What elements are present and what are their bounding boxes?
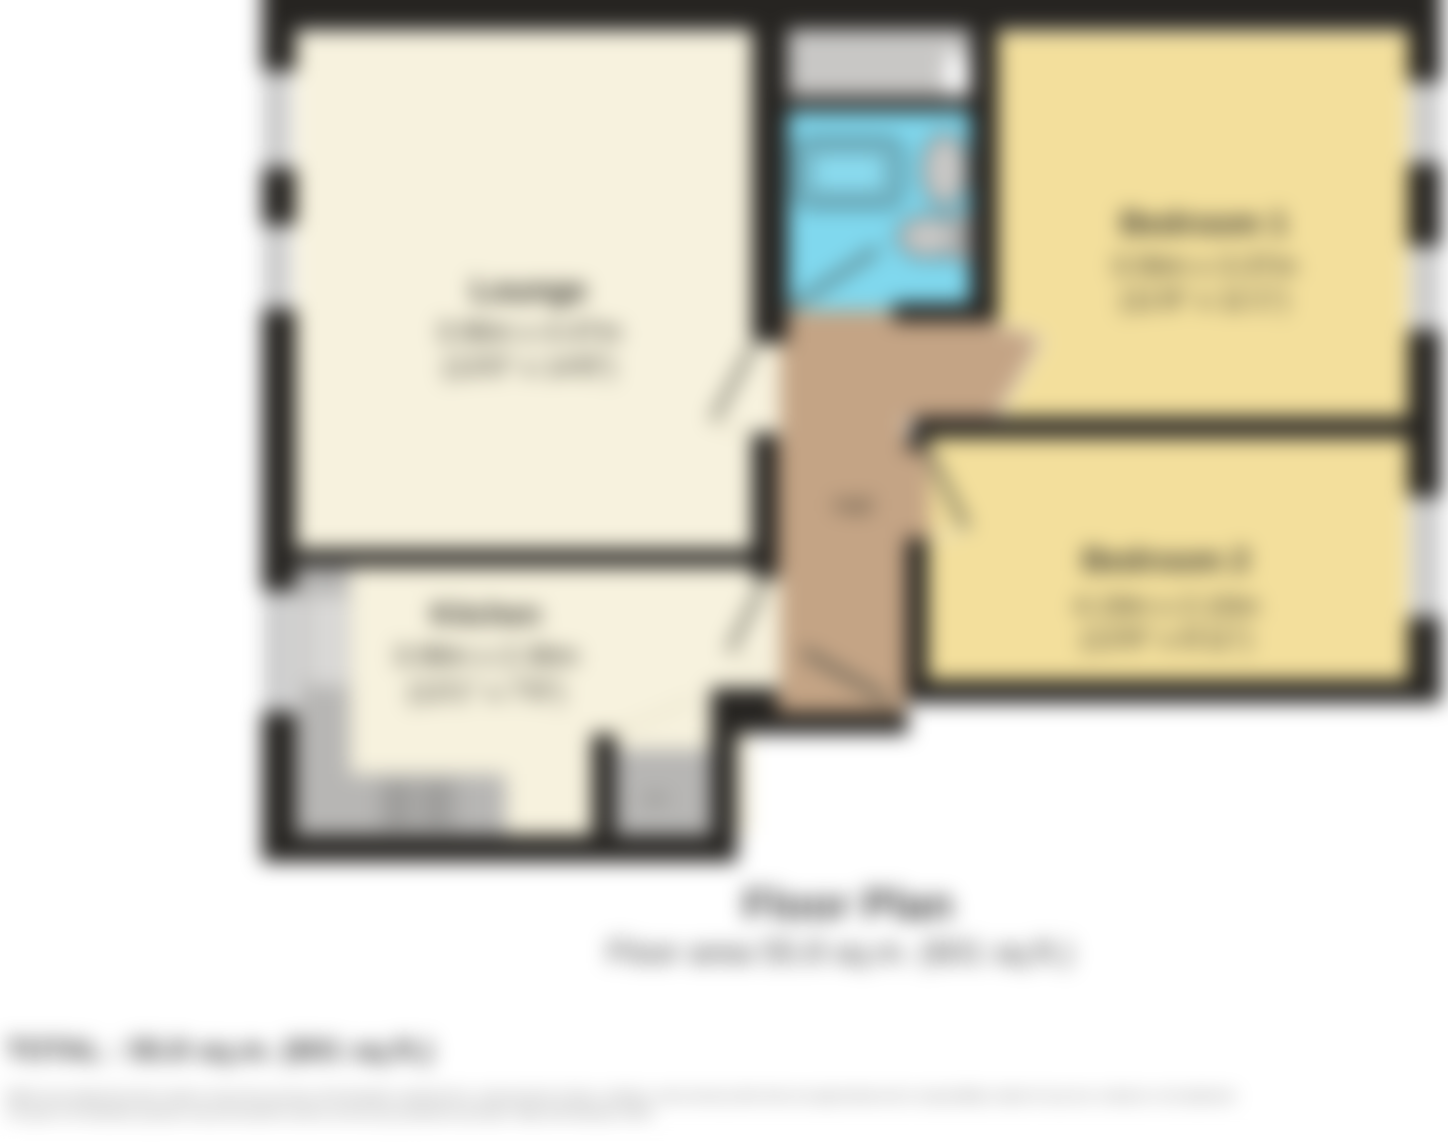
svg-text:3.98m x 2.36m: 3.98m x 2.36m — [393, 640, 578, 671]
svg-text:3.96m x 4.47m: 3.96m x 4.47m — [436, 316, 621, 347]
svg-text:Bedroom 1: Bedroom 1 — [1120, 205, 1287, 241]
svg-text:wm: wm — [644, 790, 667, 806]
svg-text:4.19m x 2.10m: 4.19m x 2.10m — [1073, 590, 1258, 621]
svg-text:(13'0" x 14'8"): (13'0" x 14'8") — [443, 351, 615, 382]
svg-text:Bedroom 2: Bedroom 2 — [1082, 542, 1249, 578]
svg-text:Hall: Hall — [834, 493, 872, 518]
svg-text:3.56m x 3.37m: 3.56m x 3.37m — [1111, 250, 1296, 281]
svg-text:Kitchen: Kitchen — [431, 598, 541, 631]
svg-text:TOTAL : 55.8 sq.m. (601 sq.ft.: TOTAL : 55.8 sq.m. (601 sq.ft.) — [6, 1034, 433, 1067]
svg-text:Whilst every attempt has been: Whilst every attempt has been made to en… — [6, 1091, 1237, 1103]
svg-text:Floor Plan: Floor Plan — [743, 881, 953, 929]
svg-text:This plan is for illustrative: This plan is for illustrative purposes o… — [6, 1108, 652, 1120]
svg-text:(13'1" x 7'9"): (13'1" x 7'9") — [408, 676, 565, 707]
svg-text:(13'9" x 6'11"): (13'9" x 6'11") — [1081, 623, 1251, 654]
svg-text:Lounge: Lounge — [471, 272, 587, 308]
svg-text:Floor area 55.8 sq.m. (601 sq.: Floor area 55.8 sq.m. (601 sq.ft.) — [607, 934, 1073, 970]
svg-text:(11'8" x 11'1"): (11'8" x 11'1") — [1120, 284, 1288, 315]
